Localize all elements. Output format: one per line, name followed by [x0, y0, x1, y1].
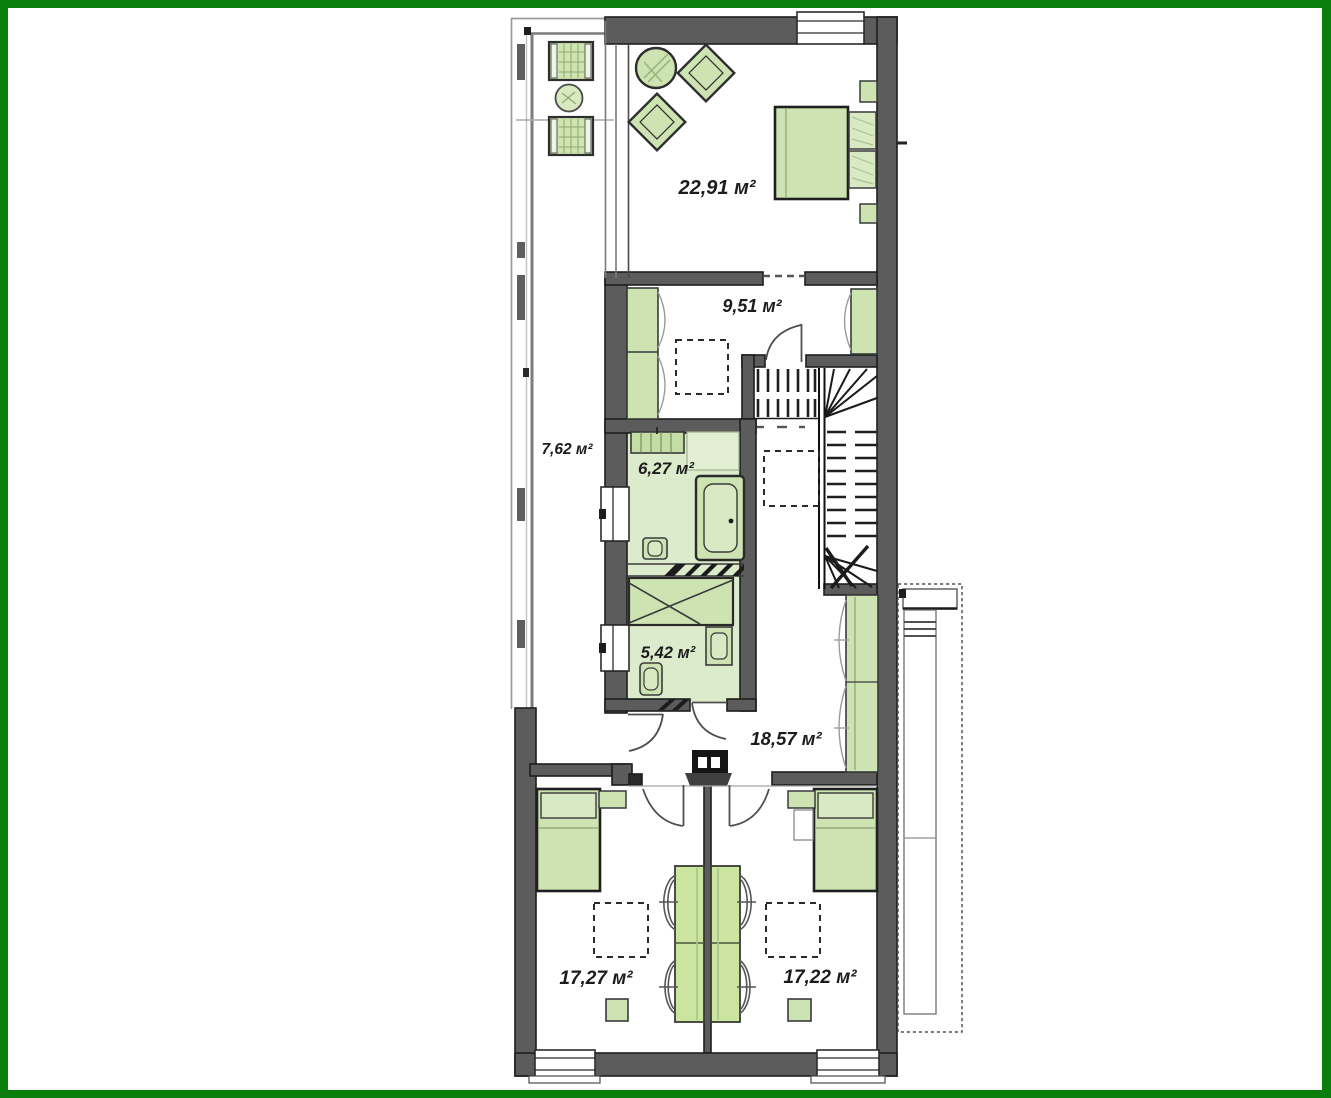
svg-text:5,42 м²: 5,42 м²: [641, 644, 696, 662]
svg-text:6,27 м²: 6,27 м²: [638, 459, 695, 478]
svg-text:7,62 м²: 7,62 м²: [541, 441, 593, 458]
svg-text:9,51 м²: 9,51 м²: [722, 296, 782, 316]
svg-text:22,91 м²: 22,91 м²: [677, 177, 756, 199]
svg-text:18,57 м²: 18,57 м²: [750, 728, 822, 749]
svg-text:17,22 м²: 17,22 м²: [783, 967, 857, 988]
svg-text:17,27 м²: 17,27 м²: [559, 968, 633, 989]
